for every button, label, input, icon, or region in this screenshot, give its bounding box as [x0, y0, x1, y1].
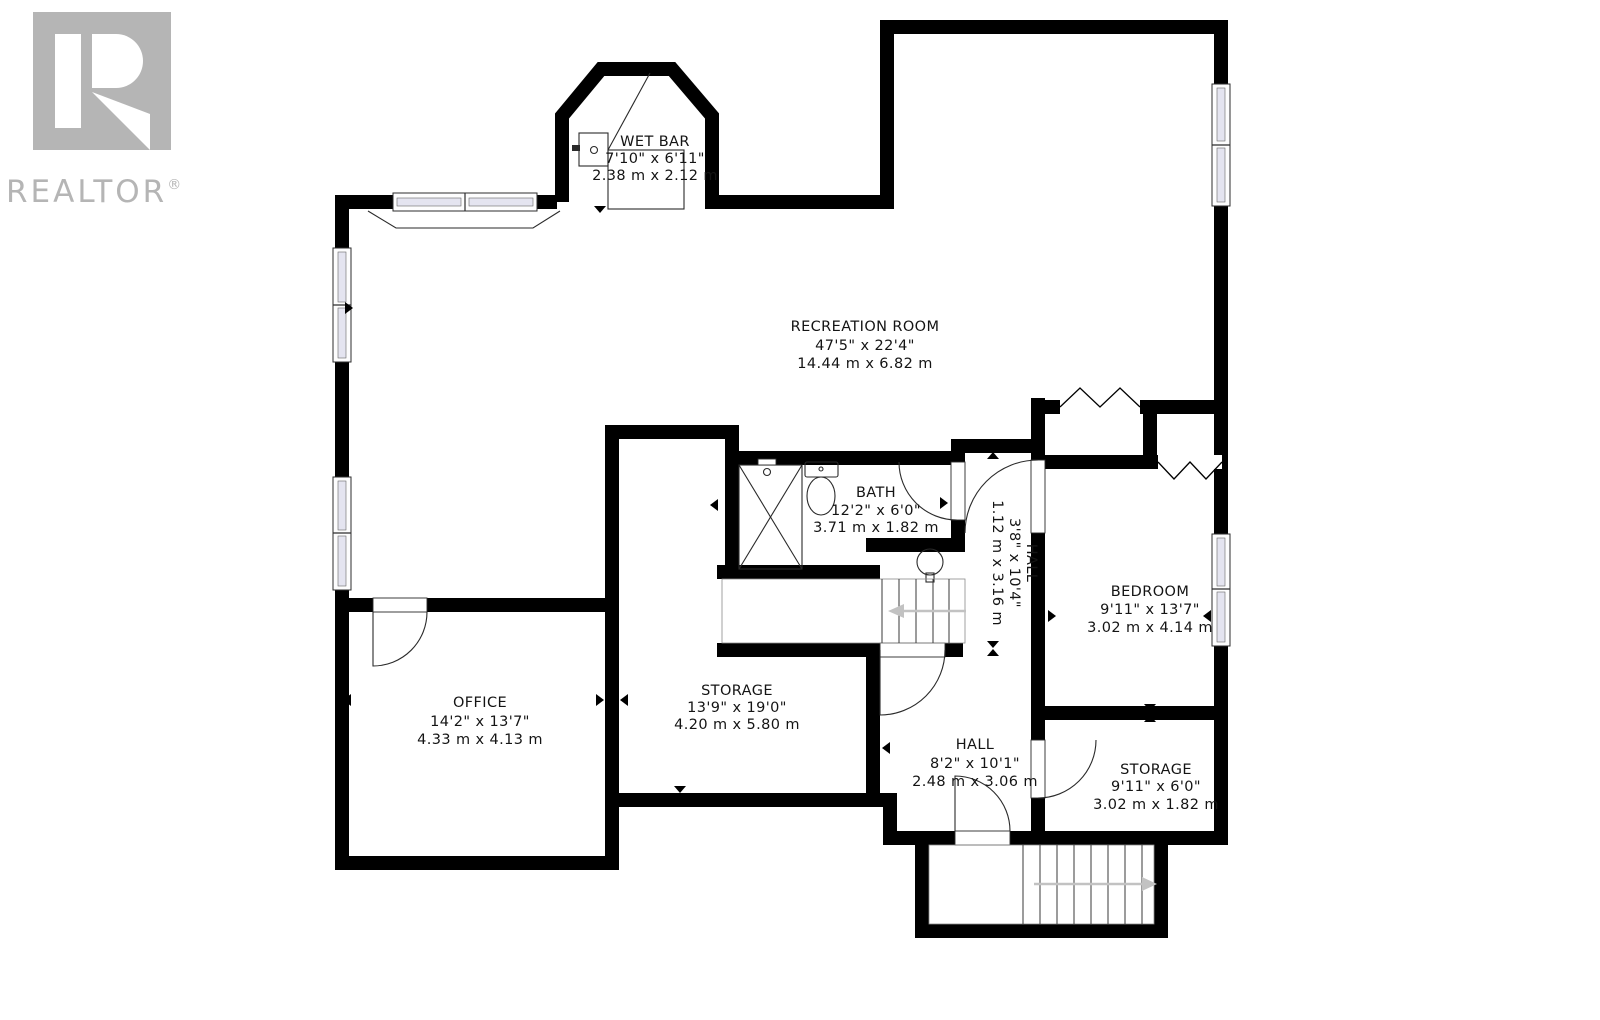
shower-icon [739, 459, 802, 569]
realtor-logo: REALTOR® [6, 12, 184, 210]
realtor-r-bar [55, 34, 81, 128]
floor-plan-page: REALTOR® [0, 0, 1600, 1020]
realtor-wordmark: REALTOR® [6, 174, 184, 210]
room-dim-imperial: 13'9" x 19'0" [687, 700, 787, 716]
wet-bar-sink-icon [572, 133, 608, 166]
room-dim-imperial: 12'2" x 6'0" [831, 503, 921, 519]
hall-top-door [880, 643, 945, 715]
room-dim-metric: 3.02 m x 4.14 m [1087, 620, 1213, 636]
room-label-storage-small: STORAGE 9'11" x 6'0" 3.02 m x 1.82 m [1093, 762, 1219, 813]
room-name: WET BAR [620, 134, 690, 150]
room-name: RECREATION ROOM [791, 319, 940, 335]
closet-bifold-upper [1060, 388, 1140, 414]
office-door [373, 598, 427, 666]
room-name: BEDROOM [1111, 584, 1190, 600]
staircase-middle [722, 579, 966, 643]
bay-window-sill [368, 211, 560, 228]
room-dim-metric: 2.48 m x 3.06 m [912, 774, 1038, 790]
room-label-hall-lower: HALL 8'2" x 10'1" 2.48 m x 3.06 m [912, 737, 1038, 790]
room-dim-imperial: 9'11" x 13'7" [1100, 602, 1200, 618]
room-label-recreation-room: RECREATION ROOM 47'5" x 22'4" 14.44 m x … [791, 319, 940, 372]
sink-icon [917, 549, 943, 582]
room-label-bath: BATH 12'2" x 6'0" 3.71 m x 1.82 m [813, 485, 939, 536]
room-dim-imperial: 9'11" x 6'0" [1111, 779, 1201, 795]
bay-window [368, 193, 560, 228]
room-dim-metric: 3.02 m x 1.82 m [1093, 797, 1219, 813]
storage-small-door [1031, 740, 1096, 798]
room-dim-metric: 3.71 m x 1.82 m [813, 520, 939, 536]
staircase-bottom [929, 845, 1157, 924]
room-label-bedroom: BEDROOM 9'11" x 13'7" 3.02 m x 4.14 m [1087, 584, 1213, 636]
window-right-upper [1212, 84, 1230, 206]
room-label-storage-large: STORAGE 13'9" x 19'0" 4.20 m x 5.80 m [674, 683, 800, 733]
room-name: BATH [856, 485, 896, 501]
floor-plan-svg: REALTOR® [0, 0, 1600, 1020]
room-dim-metric: 1.12 m x 3.16 m [989, 500, 1005, 626]
room-dim-metric: 2.38 m x 2.12 m [592, 168, 718, 184]
window-right-lower [1212, 534, 1230, 646]
room-dim-metric: 14.44 m x 6.82 m [797, 356, 932, 372]
room-dim-imperial: 14'2" x 13'7" [430, 714, 530, 730]
room-label-office: OFFICE 14'2" x 13'7" 4.33 m x 4.13 m [417, 695, 543, 748]
room-dim-imperial: 7'10" x 6'11" [605, 151, 705, 167]
room-dim-metric: 4.33 m x 4.13 m [417, 732, 543, 748]
room-name: HALL [956, 737, 995, 753]
window-left-lower [333, 477, 351, 590]
room-name: STORAGE [701, 683, 773, 699]
room-name: OFFICE [453, 695, 507, 711]
room-dim-imperial: 3'8" x 10'4" [1006, 518, 1022, 608]
windows [333, 84, 1230, 646]
closet-bifold-lower [1158, 455, 1222, 479]
room-name: STORAGE [1120, 762, 1192, 778]
dimension-ticks [343, 206, 1211, 863]
room-name: HALL [1023, 544, 1039, 583]
room-dim-imperial: 47'5" x 22'4" [815, 338, 915, 354]
room-dim-metric: 4.20 m x 5.80 m [674, 717, 800, 733]
stairs-down-arrow [888, 604, 904, 618]
room-label-wet-bar: WET BAR 7'10" x 6'11" 2.38 m x 2.12 m [592, 134, 718, 184]
room-dim-imperial: 8'2" x 10'1" [930, 756, 1020, 772]
